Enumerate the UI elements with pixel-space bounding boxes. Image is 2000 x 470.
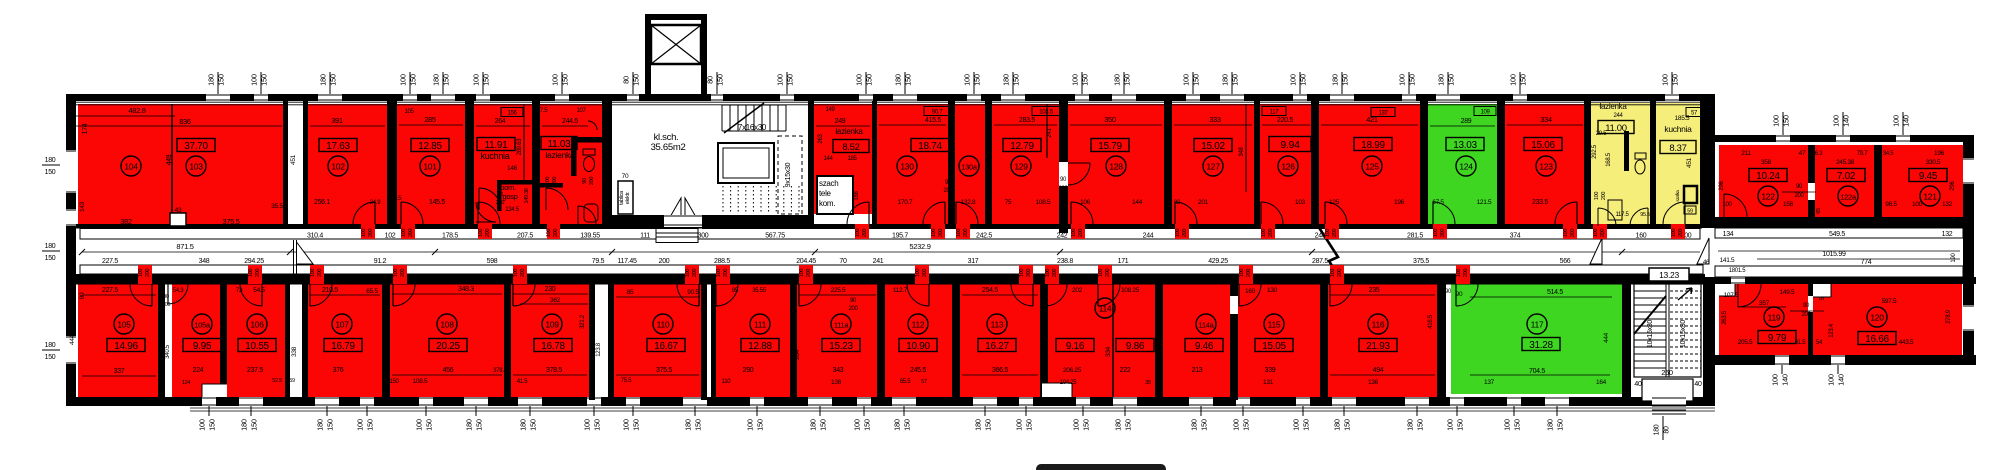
svg-text:10.24: 10.24 bbox=[1756, 171, 1780, 182]
svg-text:220.5: 220.5 bbox=[1277, 117, 1293, 124]
svg-text:375.5: 375.5 bbox=[222, 217, 239, 226]
svg-text:150: 150 bbox=[819, 419, 828, 431]
svg-text:17.63: 17.63 bbox=[326, 141, 350, 152]
svg-text:150: 150 bbox=[593, 419, 602, 431]
svg-text:110: 110 bbox=[722, 379, 732, 385]
svg-text:213: 213 bbox=[1192, 367, 1203, 374]
svg-text:180: 180 bbox=[1331, 74, 1340, 86]
svg-text:134: 134 bbox=[1723, 231, 1734, 238]
svg-text:100: 100 bbox=[310, 269, 316, 278]
svg-text:10.90: 10.90 bbox=[906, 341, 930, 352]
svg-text:90: 90 bbox=[945, 180, 952, 186]
svg-text:871.5: 871.5 bbox=[176, 242, 193, 251]
svg-text:242: 242 bbox=[1057, 233, 1068, 240]
svg-text:15.79: 15.79 bbox=[1098, 141, 1122, 152]
svg-text:47: 47 bbox=[1799, 150, 1806, 157]
svg-text:112: 112 bbox=[912, 320, 925, 330]
svg-text:100: 100 bbox=[545, 177, 551, 186]
svg-text:150: 150 bbox=[1556, 419, 1565, 431]
svg-text:429.25: 429.25 bbox=[1208, 258, 1228, 265]
svg-text:100: 100 bbox=[1892, 115, 1901, 127]
svg-text:5232.9: 5232.9 bbox=[909, 242, 930, 251]
svg-text:188: 188 bbox=[854, 190, 860, 200]
svg-text:170.7: 170.7 bbox=[898, 199, 913, 206]
svg-text:230: 230 bbox=[545, 286, 556, 293]
svg-text:227.5: 227.5 bbox=[102, 258, 118, 265]
svg-text:337.5: 337.5 bbox=[702, 338, 708, 352]
svg-text:100: 100 bbox=[1827, 374, 1836, 386]
svg-text:31.28: 31.28 bbox=[1529, 340, 1553, 351]
svg-text:296: 296 bbox=[1950, 180, 1956, 190]
svg-text:150: 150 bbox=[1456, 419, 1465, 431]
svg-text:102: 102 bbox=[331, 162, 345, 172]
svg-text:196: 196 bbox=[1934, 150, 1945, 157]
svg-text:124: 124 bbox=[182, 380, 191, 386]
svg-text:79.5: 79.5 bbox=[592, 258, 605, 265]
svg-text:119: 119 bbox=[1768, 313, 1781, 323]
svg-text:130: 130 bbox=[1267, 287, 1278, 294]
svg-text:108.5: 108.5 bbox=[413, 378, 428, 385]
svg-text:205.5: 205.5 bbox=[1738, 339, 1753, 346]
svg-text:9.94: 9.94 bbox=[1280, 139, 1300, 151]
svg-text:100: 100 bbox=[401, 229, 407, 238]
svg-text:180: 180 bbox=[684, 419, 693, 431]
svg-text:90: 90 bbox=[1060, 177, 1067, 183]
svg-text:9.79: 9.79 bbox=[1768, 333, 1787, 344]
svg-text:144: 144 bbox=[823, 156, 833, 162]
svg-text:294.25: 294.25 bbox=[244, 258, 264, 265]
svg-text:235: 235 bbox=[1369, 287, 1380, 294]
svg-text:11.00: 11.00 bbox=[1605, 123, 1627, 134]
svg-text:103: 103 bbox=[189, 162, 203, 172]
svg-text:180: 180 bbox=[1654, 424, 1661, 435]
svg-text:449: 449 bbox=[166, 154, 173, 165]
svg-text:13.03: 13.03 bbox=[1453, 140, 1477, 151]
svg-text:65: 65 bbox=[1816, 208, 1822, 214]
svg-text:90: 90 bbox=[850, 298, 857, 304]
svg-text:285: 285 bbox=[424, 115, 436, 124]
svg-text:451: 451 bbox=[1686, 157, 1693, 168]
svg-text:9.16: 9.16 bbox=[1066, 341, 1085, 352]
svg-text:774: 774 bbox=[1861, 259, 1872, 266]
svg-text:201: 201 bbox=[1198, 199, 1209, 206]
svg-text:237.5: 237.5 bbox=[247, 367, 263, 374]
svg-text:376: 376 bbox=[333, 367, 344, 374]
svg-text:37.5: 37.5 bbox=[537, 108, 548, 114]
svg-text:150: 150 bbox=[1123, 74, 1132, 86]
svg-text:200: 200 bbox=[848, 306, 858, 312]
svg-text:204.45: 204.45 bbox=[796, 258, 816, 265]
svg-text:178.5: 178.5 bbox=[442, 233, 458, 240]
svg-text:100: 100 bbox=[1912, 201, 1923, 208]
svg-text:140: 140 bbox=[1781, 374, 1790, 386]
svg-text:132: 132 bbox=[1942, 201, 1953, 208]
svg-text:102: 102 bbox=[385, 233, 396, 240]
svg-text:150: 150 bbox=[1513, 419, 1522, 431]
svg-text:120: 120 bbox=[1870, 313, 1884, 323]
svg-text:200: 200 bbox=[400, 269, 406, 278]
svg-text:100: 100 bbox=[415, 419, 424, 431]
svg-text:16.67: 16.67 bbox=[654, 341, 678, 352]
svg-text:290: 290 bbox=[743, 367, 754, 374]
svg-text:333: 333 bbox=[1209, 115, 1221, 124]
svg-text:100: 100 bbox=[853, 419, 862, 431]
svg-text:150: 150 bbox=[326, 419, 335, 431]
svg-text:100: 100 bbox=[1594, 192, 1600, 201]
svg-text:35: 35 bbox=[1145, 380, 1151, 386]
svg-text:200: 200 bbox=[145, 269, 151, 278]
svg-text:100: 100 bbox=[1772, 115, 1781, 127]
svg-text:140: 140 bbox=[1842, 115, 1851, 127]
svg-text:7x16x30: 7x16x30 bbox=[738, 123, 767, 132]
svg-text:340.5: 340.5 bbox=[165, 344, 171, 358]
svg-text:21.93: 21.93 bbox=[1366, 341, 1390, 352]
svg-text:100: 100 bbox=[799, 269, 805, 278]
svg-text:57: 57 bbox=[921, 379, 927, 385]
svg-text:100: 100 bbox=[472, 74, 481, 86]
svg-text:tele: tele bbox=[819, 189, 832, 198]
svg-text:225.5: 225.5 bbox=[831, 287, 846, 294]
svg-text:443.5: 443.5 bbox=[1899, 339, 1914, 346]
svg-text:350: 350 bbox=[1104, 115, 1116, 124]
svg-text:100: 100 bbox=[551, 74, 560, 86]
svg-text:289: 289 bbox=[1461, 118, 1472, 125]
svg-text:130: 130 bbox=[900, 162, 914, 172]
svg-text:494: 494 bbox=[1373, 367, 1384, 374]
svg-text:90: 90 bbox=[1796, 184, 1803, 190]
svg-text:284: 284 bbox=[794, 349, 801, 360]
svg-text:200: 200 bbox=[659, 258, 670, 265]
svg-text:283.5: 283.5 bbox=[1019, 117, 1035, 124]
svg-text:29.5: 29.5 bbox=[1596, 131, 1607, 137]
svg-text:136: 136 bbox=[1368, 379, 1379, 386]
svg-text:227.5: 227.5 bbox=[102, 287, 118, 294]
svg-text:66.3: 66.3 bbox=[1812, 151, 1823, 157]
svg-text:121: 121 bbox=[1923, 192, 1937, 202]
svg-text:264: 264 bbox=[495, 118, 506, 125]
svg-text:200: 200 bbox=[255, 269, 261, 278]
svg-text:100: 100 bbox=[622, 419, 631, 431]
svg-text:39.5: 39.5 bbox=[391, 196, 402, 202]
svg-text:108: 108 bbox=[440, 320, 454, 330]
svg-text:180: 180 bbox=[519, 419, 528, 431]
svg-text:174: 174 bbox=[71, 367, 78, 378]
svg-text:125: 125 bbox=[1365, 162, 1379, 172]
svg-text:180: 180 bbox=[1437, 74, 1446, 86]
svg-text:40: 40 bbox=[1634, 381, 1642, 388]
svg-text:150: 150 bbox=[1671, 74, 1680, 86]
svg-text:100: 100 bbox=[1232, 419, 1241, 431]
svg-text:200: 200 bbox=[723, 269, 729, 278]
svg-text:100: 100 bbox=[1832, 115, 1841, 127]
svg-text:90: 90 bbox=[163, 294, 169, 300]
svg-text:112.7: 112.7 bbox=[893, 287, 908, 294]
svg-text:90: 90 bbox=[497, 192, 503, 198]
svg-text:378.5: 378.5 bbox=[546, 367, 562, 374]
svg-text:180: 180 bbox=[45, 157, 56, 164]
svg-text:200: 200 bbox=[1337, 269, 1343, 278]
svg-text:100: 100 bbox=[138, 269, 144, 278]
svg-text:338: 338 bbox=[291, 346, 298, 357]
svg-text:100: 100 bbox=[393, 269, 399, 278]
svg-text:łazienka: łazienka bbox=[836, 127, 864, 136]
svg-text:334: 334 bbox=[1540, 115, 1552, 124]
svg-text:150: 150 bbox=[366, 419, 375, 431]
svg-text:106: 106 bbox=[250, 320, 264, 330]
svg-text:15.06: 15.06 bbox=[1531, 140, 1555, 151]
svg-text:200: 200 bbox=[1182, 229, 1188, 238]
svg-text:150: 150 bbox=[1012, 74, 1021, 86]
svg-text:121.5: 121.5 bbox=[1477, 199, 1492, 206]
svg-text:150: 150 bbox=[973, 74, 982, 86]
svg-text:168.5: 168.5 bbox=[1606, 152, 1612, 166]
svg-text:150: 150 bbox=[1299, 74, 1308, 86]
svg-text:132.8: 132.8 bbox=[961, 199, 976, 206]
svg-text:180: 180 bbox=[1113, 74, 1122, 86]
svg-text:156: 156 bbox=[507, 111, 517, 117]
svg-text:200: 200 bbox=[485, 229, 491, 238]
svg-text:100: 100 bbox=[1671, 229, 1677, 238]
svg-text:451: 451 bbox=[290, 154, 297, 165]
svg-text:100: 100 bbox=[248, 269, 254, 278]
svg-text:150: 150 bbox=[409, 74, 418, 86]
svg-text:70: 70 bbox=[839, 258, 847, 265]
svg-text:137: 137 bbox=[1378, 111, 1388, 117]
svg-text:146: 146 bbox=[507, 165, 518, 172]
svg-text:100: 100 bbox=[1261, 229, 1267, 238]
svg-text:164: 164 bbox=[1596, 379, 1607, 386]
svg-text:18.99: 18.99 bbox=[1361, 140, 1385, 151]
svg-text:321.2: 321.2 bbox=[580, 314, 586, 328]
svg-text:11.03: 11.03 bbox=[548, 139, 572, 150]
svg-text:109: 109 bbox=[545, 320, 559, 330]
svg-text:150: 150 bbox=[1408, 74, 1417, 86]
svg-text:566: 566 bbox=[1560, 258, 1571, 265]
svg-text:200: 200 bbox=[1601, 192, 1607, 201]
svg-text:41.5: 41.5 bbox=[517, 379, 528, 385]
svg-text:238.8: 238.8 bbox=[1057, 258, 1073, 265]
svg-text:122a: 122a bbox=[1840, 193, 1857, 202]
svg-text:91.2: 91.2 bbox=[374, 258, 387, 265]
svg-text:150: 150 bbox=[217, 74, 226, 86]
svg-text:12.79: 12.79 bbox=[1010, 141, 1034, 152]
svg-text:150: 150 bbox=[45, 255, 56, 262]
svg-text:150: 150 bbox=[1519, 74, 1528, 86]
svg-text:122: 122 bbox=[1761, 192, 1775, 202]
svg-text:61.5: 61.5 bbox=[1795, 340, 1806, 346]
svg-text:348: 348 bbox=[199, 258, 210, 265]
svg-text:100: 100 bbox=[915, 269, 921, 278]
svg-text:103: 103 bbox=[1295, 199, 1306, 206]
svg-text:łazienka: łazienka bbox=[546, 150, 575, 160]
svg-text:249: 249 bbox=[835, 118, 846, 125]
svg-text:100: 100 bbox=[1661, 74, 1670, 86]
svg-text:100: 100 bbox=[399, 74, 408, 86]
svg-text:kom.: kom. bbox=[819, 199, 835, 208]
svg-text:łazienka: łazienka bbox=[1600, 102, 1628, 111]
svg-text:9.46: 9.46 bbox=[1195, 341, 1214, 352]
svg-text:150: 150 bbox=[425, 419, 434, 431]
svg-text:200: 200 bbox=[553, 229, 559, 238]
svg-text:75.5: 75.5 bbox=[621, 378, 632, 384]
svg-text:567.75: 567.75 bbox=[765, 233, 785, 240]
svg-text:10.55: 10.55 bbox=[245, 341, 269, 352]
svg-text:281.5: 281.5 bbox=[1407, 233, 1423, 240]
svg-text:200: 200 bbox=[317, 269, 323, 278]
svg-text:104: 104 bbox=[124, 162, 138, 172]
svg-text:137: 137 bbox=[1484, 379, 1495, 386]
svg-text:150: 150 bbox=[1082, 419, 1091, 431]
svg-text:73: 73 bbox=[236, 287, 243, 294]
svg-text:9.86: 9.86 bbox=[1126, 341, 1145, 352]
svg-text:100: 100 bbox=[1292, 419, 1301, 431]
svg-text:200: 200 bbox=[1058, 186, 1068, 192]
svg-text:195.7: 195.7 bbox=[892, 233, 908, 240]
svg-text:200: 200 bbox=[368, 229, 374, 238]
svg-text:54.3: 54.3 bbox=[173, 288, 184, 294]
svg-text:160: 160 bbox=[1245, 288, 1256, 295]
svg-text:200: 200 bbox=[1801, 312, 1811, 318]
svg-text:123.4: 123.4 bbox=[1829, 323, 1835, 337]
svg-text:126: 126 bbox=[1281, 162, 1295, 172]
svg-text:180: 180 bbox=[432, 74, 441, 86]
svg-text:100: 100 bbox=[1771, 374, 1780, 386]
svg-text:158: 158 bbox=[1783, 201, 1794, 208]
svg-text:105a: 105a bbox=[194, 321, 211, 330]
svg-text:180: 180 bbox=[894, 74, 903, 86]
svg-text:100: 100 bbox=[198, 419, 207, 431]
svg-text:149.5: 149.5 bbox=[1780, 289, 1795, 296]
svg-text:200: 200 bbox=[806, 269, 812, 278]
svg-text:140: 140 bbox=[1837, 374, 1846, 386]
svg-text:150: 150 bbox=[1416, 419, 1425, 431]
svg-text:16.27: 16.27 bbox=[985, 341, 1009, 352]
svg-text:40: 40 bbox=[1694, 381, 1702, 388]
svg-text:113: 113 bbox=[991, 320, 1004, 330]
svg-text:180: 180 bbox=[1114, 419, 1123, 431]
svg-text:245.5: 245.5 bbox=[910, 367, 926, 374]
svg-text:100: 100 bbox=[356, 419, 365, 431]
svg-text:100: 100 bbox=[250, 74, 259, 86]
svg-text:95.5: 95.5 bbox=[1640, 212, 1650, 218]
svg-text:65.5: 65.5 bbox=[900, 379, 911, 385]
svg-text:1015.99: 1015.99 bbox=[1822, 251, 1846, 258]
svg-text:242.5: 242.5 bbox=[976, 233, 992, 240]
svg-text:200: 200 bbox=[162, 302, 171, 308]
svg-text:416.5: 416.5 bbox=[1428, 314, 1434, 328]
svg-text:150: 150 bbox=[1343, 419, 1352, 431]
svg-text:337: 337 bbox=[114, 368, 125, 375]
svg-text:150: 150 bbox=[250, 419, 259, 431]
svg-text:128: 128 bbox=[1109, 162, 1123, 172]
svg-text:200: 200 bbox=[1600, 229, 1606, 238]
svg-text:200: 200 bbox=[692, 269, 698, 278]
svg-text:180: 180 bbox=[316, 419, 325, 431]
svg-text:139.55: 139.55 bbox=[580, 233, 600, 240]
svg-text:200: 200 bbox=[1026, 269, 1032, 278]
svg-text:111: 111 bbox=[640, 233, 650, 240]
svg-text:597.5: 597.5 bbox=[1882, 298, 1897, 305]
svg-text:150: 150 bbox=[1081, 74, 1090, 86]
svg-text:100: 100 bbox=[1563, 229, 1569, 238]
svg-text:16.66: 16.66 bbox=[1865, 334, 1889, 345]
svg-text:101: 101 bbox=[423, 162, 437, 172]
svg-text:12.88: 12.88 bbox=[748, 341, 772, 352]
svg-text:100: 100 bbox=[1239, 269, 1245, 278]
svg-text:100: 100 bbox=[1098, 269, 1104, 278]
svg-text:90: 90 bbox=[1445, 289, 1452, 295]
svg-text:224: 224 bbox=[193, 367, 204, 374]
svg-text:20.25: 20.25 bbox=[436, 341, 460, 352]
svg-text:elektr.: elektr. bbox=[625, 191, 631, 204]
svg-text:150: 150 bbox=[865, 74, 874, 86]
svg-text:90.5: 90.5 bbox=[687, 289, 699, 296]
svg-text:180: 180 bbox=[1406, 419, 1415, 431]
svg-text:357: 357 bbox=[1759, 300, 1770, 307]
svg-text:111: 111 bbox=[754, 320, 767, 330]
svg-text:150: 150 bbox=[1192, 74, 1201, 86]
svg-text:117: 117 bbox=[1531, 320, 1544, 330]
svg-text:150: 150 bbox=[1231, 74, 1240, 86]
svg-text:100: 100 bbox=[855, 229, 861, 238]
svg-text:241: 241 bbox=[1047, 127, 1053, 137]
svg-text:200: 200 bbox=[1794, 193, 1804, 199]
svg-text:444: 444 bbox=[1603, 332, 1610, 343]
svg-text:200: 200 bbox=[1246, 269, 1252, 278]
svg-text:100: 100 bbox=[1071, 229, 1077, 238]
svg-text:110: 110 bbox=[657, 320, 670, 330]
svg-text:444: 444 bbox=[69, 334, 76, 345]
svg-text:200: 200 bbox=[1678, 229, 1684, 238]
svg-text:117.45: 117.45 bbox=[617, 258, 636, 265]
svg-text:90: 90 bbox=[79, 292, 86, 299]
svg-text:90: 90 bbox=[1803, 303, 1810, 309]
svg-text:43: 43 bbox=[175, 207, 182, 214]
svg-text:100: 100 bbox=[1456, 269, 1462, 278]
svg-text:13.23: 13.23 bbox=[1659, 270, 1679, 280]
svg-text:514.5: 514.5 bbox=[1547, 289, 1563, 296]
svg-text:200: 200 bbox=[552, 177, 558, 186]
svg-text:200: 200 bbox=[520, 269, 526, 278]
svg-text:144: 144 bbox=[1132, 199, 1143, 206]
svg-text:180: 180 bbox=[240, 419, 249, 431]
svg-text:200: 200 bbox=[1268, 229, 1274, 238]
svg-text:358: 358 bbox=[1761, 159, 1772, 166]
svg-text:348: 348 bbox=[1239, 146, 1245, 156]
svg-text:150: 150 bbox=[903, 419, 912, 431]
svg-text:80: 80 bbox=[622, 76, 631, 84]
svg-text:9.95: 9.95 bbox=[193, 341, 212, 352]
svg-text:1801.5: 1801.5 bbox=[1729, 268, 1747, 274]
svg-text:12.85: 12.85 bbox=[418, 141, 442, 152]
svg-text:150: 150 bbox=[1242, 419, 1251, 431]
svg-text:kuchnia: kuchnia bbox=[481, 151, 510, 161]
svg-text:108.5: 108.5 bbox=[1036, 199, 1051, 206]
svg-text:107: 107 bbox=[576, 108, 586, 114]
svg-text:65.5: 65.5 bbox=[366, 288, 378, 295]
svg-text:244: 244 bbox=[1143, 233, 1154, 240]
svg-text:100: 100 bbox=[956, 229, 962, 238]
svg-text:244.5: 244.5 bbox=[562, 118, 578, 125]
svg-text:35.65m2: 35.65m2 bbox=[651, 142, 686, 153]
svg-text:145.5: 145.5 bbox=[429, 199, 445, 206]
svg-text:180: 180 bbox=[974, 419, 983, 431]
svg-text:391: 391 bbox=[331, 116, 343, 125]
svg-text:185: 185 bbox=[847, 156, 857, 162]
svg-text:104.25: 104.25 bbox=[1060, 380, 1078, 386]
svg-text:180: 180 bbox=[1221, 74, 1230, 86]
svg-text:pom.: pom. bbox=[500, 183, 516, 192]
